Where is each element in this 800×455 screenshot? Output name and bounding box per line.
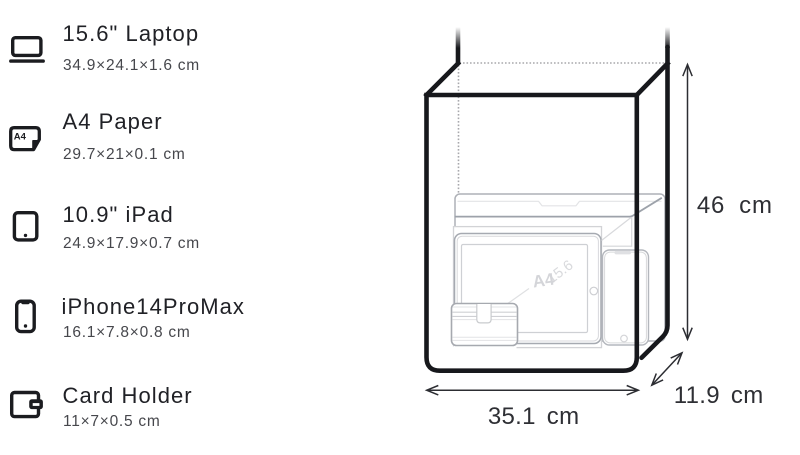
svg-text:A4: A4 <box>531 270 556 292</box>
